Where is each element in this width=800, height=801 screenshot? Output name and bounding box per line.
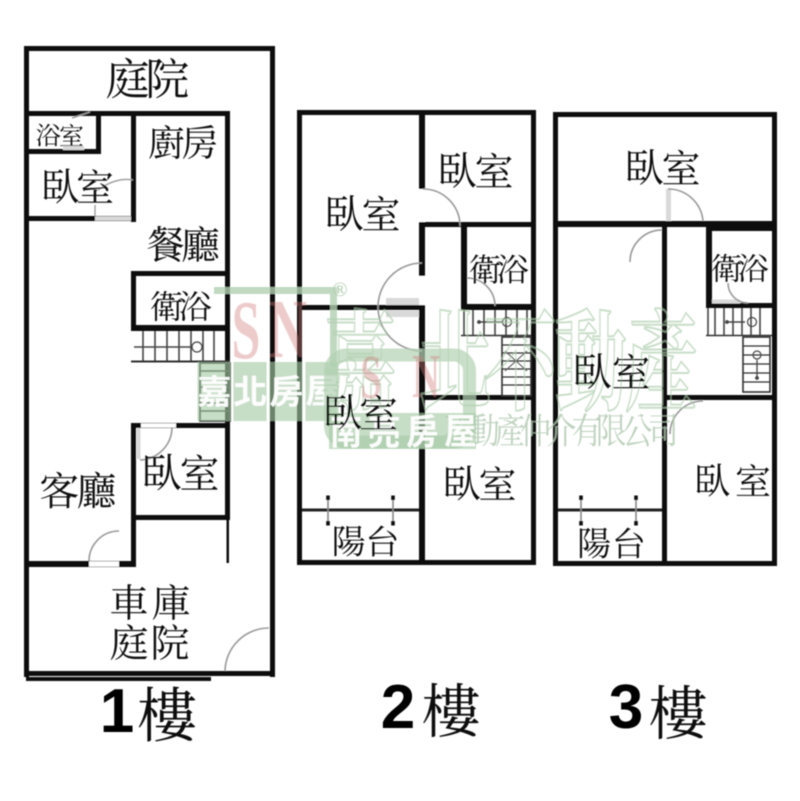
svg-text:3: 3 <box>609 673 643 742</box>
svg-text:S: S <box>360 344 381 413</box>
svg-text:®: ® <box>332 279 347 301</box>
svg-text:2: 2 <box>381 673 415 742</box>
svg-text:1: 1 <box>100 677 134 746</box>
svg-text:N: N <box>412 343 440 412</box>
